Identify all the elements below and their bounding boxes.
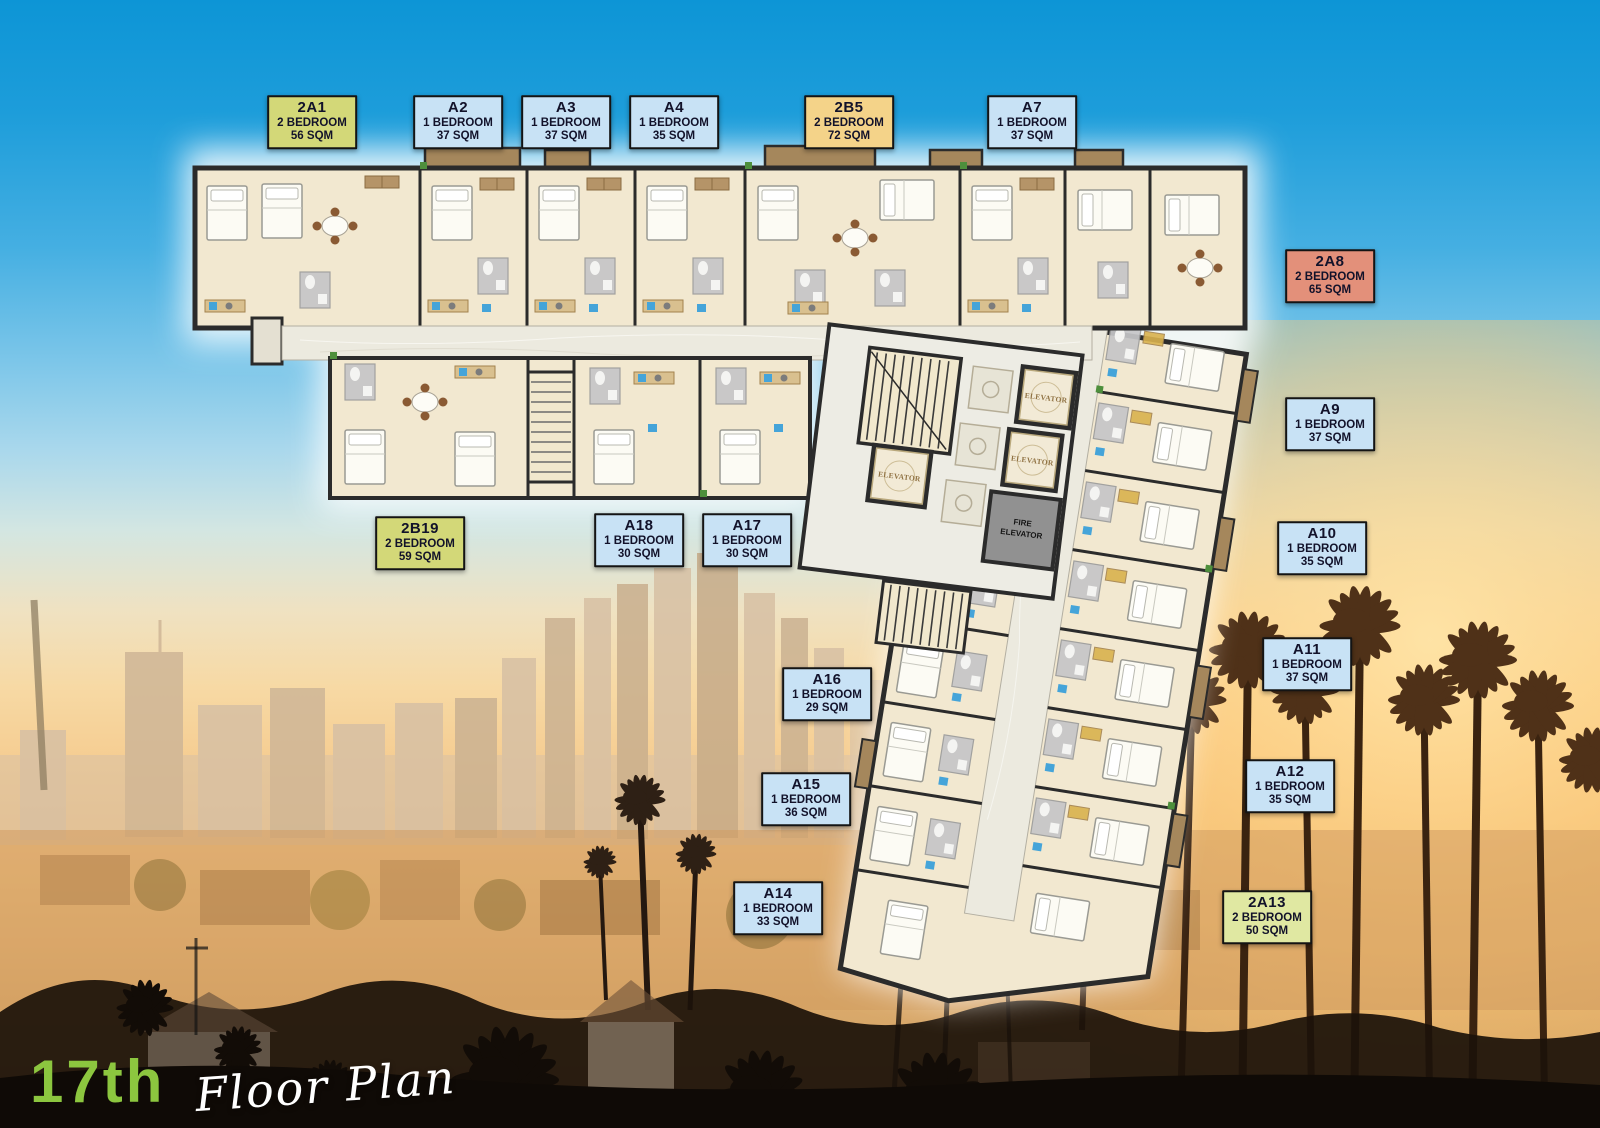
- unit-type: 1 BEDROOM: [531, 117, 601, 130]
- unit-badge-2B19[interactable]: 2B19 2 BEDROOM 59 SQM: [375, 516, 465, 570]
- unit-area: 37 SQM: [1272, 672, 1342, 685]
- unit-area: 65 SQM: [1295, 284, 1365, 297]
- unit-code: A7: [997, 100, 1067, 117]
- floor-number: 17th: [30, 1047, 165, 1116]
- unit-type: 1 BEDROOM: [1255, 781, 1325, 794]
- unit-area: 37 SQM: [423, 130, 493, 143]
- unit-code: 2B19: [385, 521, 455, 538]
- unit-code: 2B5: [814, 100, 884, 117]
- building-top-wing: [195, 146, 1245, 328]
- unit-badge-A18[interactable]: A18 1 BEDROOM 30 SQM: [594, 513, 684, 567]
- unit-code: 2A13: [1232, 895, 1302, 912]
- unit-badge-A11[interactable]: A11 1 BEDROOM 37 SQM: [1262, 637, 1352, 691]
- unit-area: 35 SQM: [1287, 556, 1357, 569]
- unit-badge-2B5[interactable]: 2B5 2 BEDROOM 72 SQM: [804, 95, 894, 149]
- unit-type: 1 BEDROOM: [771, 794, 841, 807]
- elevator-1: ELEVATOR: [1014, 364, 1079, 431]
- floor-plan-script: Floor Plan: [194, 1050, 458, 1122]
- unit-badge-A17[interactable]: A17 1 BEDROOM 30 SQM: [702, 513, 792, 567]
- unit-area: 37 SQM: [1295, 432, 1365, 445]
- unit-area: 33 SQM: [743, 916, 813, 929]
- unit-type: 1 BEDROOM: [743, 903, 813, 916]
- elevator-3: ELEVATOR: [865, 442, 934, 509]
- unit-code: A17: [712, 518, 782, 535]
- unit-badge-2A13[interactable]: 2A13 2 BEDROOM 50 SQM: [1222, 890, 1312, 944]
- unit-badge-2A8[interactable]: 2A8 2 BEDROOM 65 SQM: [1285, 249, 1375, 303]
- unit-badge-A15[interactable]: A15 1 BEDROOM 36 SQM: [761, 772, 851, 826]
- unit-type: 1 BEDROOM: [1295, 419, 1365, 432]
- unit-type: 2 BEDROOM: [277, 117, 347, 130]
- unit-badge-A3[interactable]: A3 1 BEDROOM 37 SQM: [521, 95, 611, 149]
- unit-area: 37 SQM: [531, 130, 601, 143]
- unit-code: A14: [743, 886, 813, 903]
- unit-area: 30 SQM: [604, 548, 674, 561]
- unit-badge-A12[interactable]: A12 1 BEDROOM 35 SQM: [1245, 759, 1335, 813]
- unit-area: 29 SQM: [792, 702, 862, 715]
- unit-code: A3: [531, 100, 601, 117]
- unit-badge-A9[interactable]: A9 1 BEDROOM 37 SQM: [1285, 397, 1375, 451]
- building-lower-band: [330, 352, 810, 498]
- unit-code: A15: [771, 777, 841, 794]
- unit-type: 1 BEDROOM: [792, 689, 862, 702]
- unit-code: A4: [639, 100, 709, 117]
- unit-area: 37 SQM: [997, 130, 1067, 143]
- unit-code: A12: [1255, 764, 1325, 781]
- unit-badge-A10[interactable]: A10 1 BEDROOM 35 SQM: [1277, 521, 1367, 575]
- unit-badge-A4[interactable]: A4 1 BEDROOM 35 SQM: [629, 95, 719, 149]
- unit-badge-2A1[interactable]: 2A1 2 BEDROOM 56 SQM: [267, 95, 357, 149]
- stairs-core-lower: [876, 581, 971, 653]
- unit-type: 1 BEDROOM: [997, 117, 1067, 130]
- unit-badge-A7[interactable]: A7 1 BEDROOM 37 SQM: [987, 95, 1077, 149]
- stairs-lower-band: [528, 372, 574, 482]
- elevator-2: ELEVATOR: [1000, 427, 1065, 494]
- unit-type: 1 BEDROOM: [604, 535, 674, 548]
- floor-title: 17th Floor Plan: [30, 1047, 457, 1116]
- floor-plan-page: ELEVATOR ELEVATOR ELEVATOR FIRE ELEVATOR: [0, 0, 1600, 1128]
- unit-area: 35 SQM: [1255, 794, 1325, 807]
- unit-code: A16: [792, 672, 862, 689]
- unit-badge-A16[interactable]: A16 1 BEDROOM 29 SQM: [782, 667, 872, 721]
- unit-code: A2: [423, 100, 493, 117]
- unit-type: 2 BEDROOM: [385, 538, 455, 551]
- unit-code: 2A8: [1295, 254, 1365, 271]
- unit-code: A18: [604, 518, 674, 535]
- unit-area: 50 SQM: [1232, 925, 1302, 938]
- stairs-core-upper: [858, 347, 961, 453]
- unit-type: 2 BEDROOM: [1232, 912, 1302, 925]
- unit-area: 59 SQM: [385, 551, 455, 564]
- unit-type: 1 BEDROOM: [423, 117, 493, 130]
- unit-type: 1 BEDROOM: [1272, 659, 1342, 672]
- unit-code: A9: [1295, 402, 1365, 419]
- unit-code: 2A1: [277, 100, 347, 117]
- unit-area: 36 SQM: [771, 807, 841, 820]
- unit-area: 72 SQM: [814, 130, 884, 143]
- unit-type: 1 BEDROOM: [712, 535, 782, 548]
- unit-area: 30 SQM: [712, 548, 782, 561]
- unit-type: 2 BEDROOM: [1295, 271, 1365, 284]
- unit-area: 35 SQM: [639, 130, 709, 143]
- fire-elevator: FIRE ELEVATOR: [983, 491, 1061, 569]
- unit-badge-A14[interactable]: A14 1 BEDROOM 33 SQM: [733, 881, 823, 935]
- unit-badge-A2[interactable]: A2 1 BEDROOM 37 SQM: [413, 95, 503, 149]
- unit-area: 56 SQM: [277, 130, 347, 143]
- unit-code: A10: [1287, 526, 1357, 543]
- unit-type: 1 BEDROOM: [1287, 543, 1357, 556]
- unit-type: 1 BEDROOM: [639, 117, 709, 130]
- unit-code: A11: [1272, 642, 1342, 659]
- unit-type: 2 BEDROOM: [814, 117, 884, 130]
